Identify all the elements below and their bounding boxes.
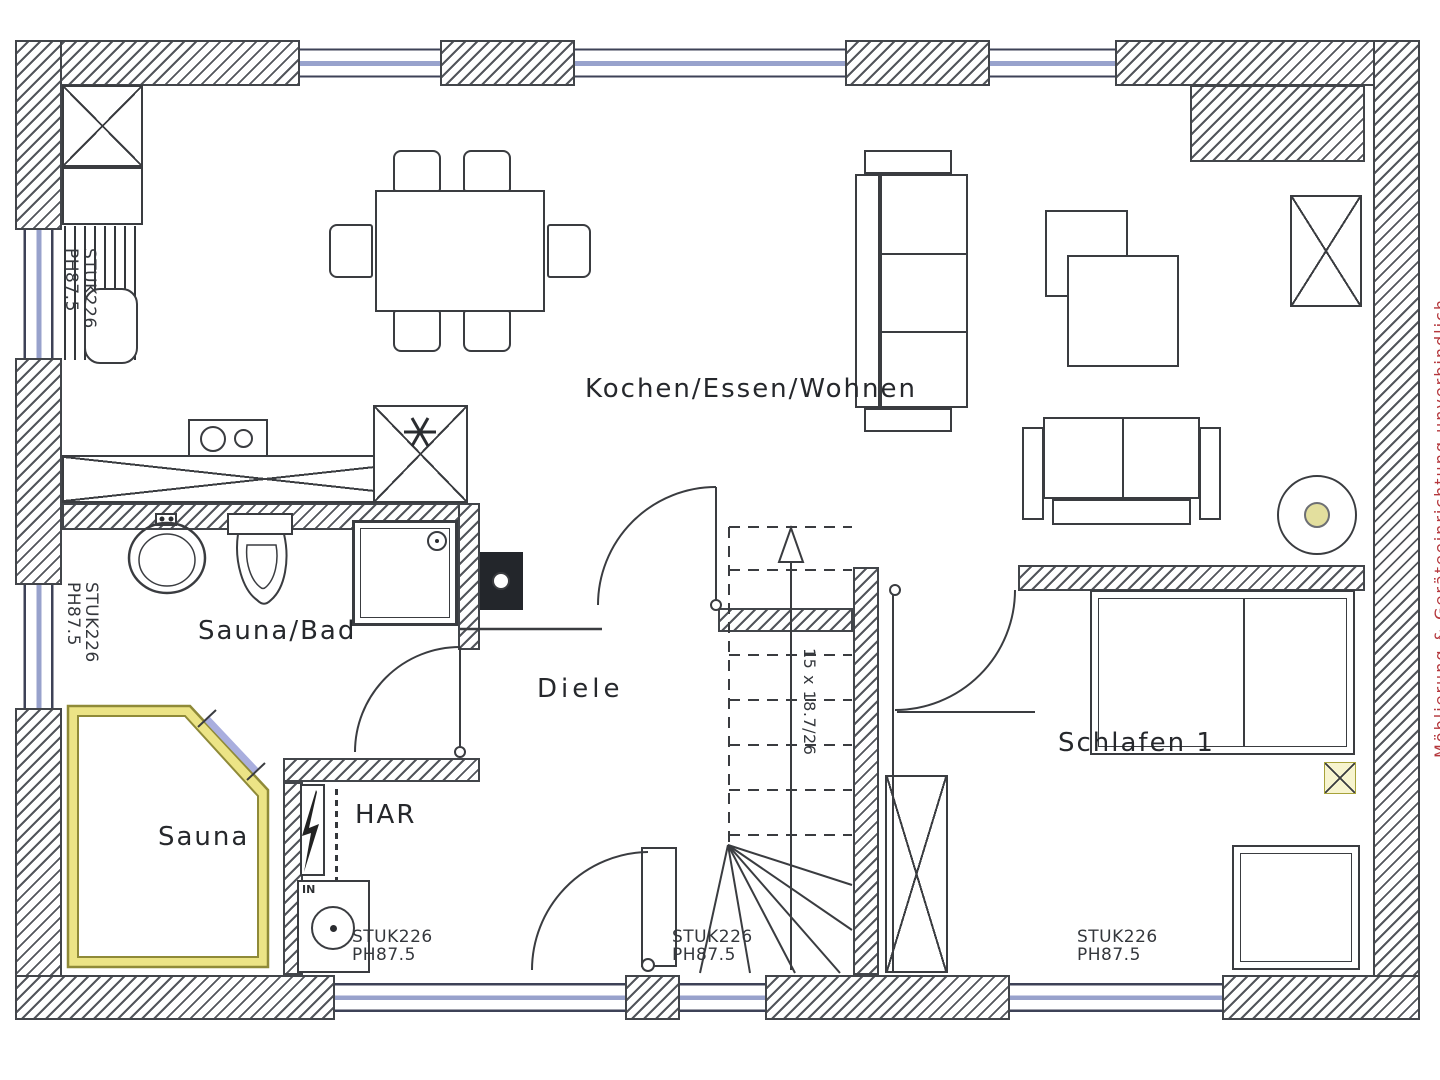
wall-bottom-2 [625,975,680,1020]
wall-top-3 [845,40,990,86]
dining-chair [547,224,591,278]
room-label-sauna: Sauna [158,822,249,852]
sink-bowl-small [234,429,253,448]
wall-left-1 [15,40,62,230]
stair-dimension-note: 15 x 18.7/26 [801,648,818,755]
sink-bowl-large [200,426,226,452]
wall-top-2 [440,40,575,86]
marker-yellow-x [1324,762,1356,794]
loveseat-seat [1043,417,1200,499]
room-label-bedroom: Schlafen 1 [1058,728,1215,758]
window-top-3 [990,40,1115,86]
wall-stair-east [853,567,879,975]
meter-dial-dot [330,925,337,932]
shower-inner [360,528,450,618]
wall-bottom-3 [765,975,1010,1020]
wardrobe-right-wall [1290,195,1362,307]
wall-right [1373,40,1420,1020]
meter-label: IN [302,883,315,896]
wall-har-north [283,758,480,782]
fridge-freezer [373,405,468,503]
loveseat-armrest [1199,427,1221,520]
electric-panel [300,784,325,876]
dining-chair [393,310,441,352]
window-bottom-3 [1010,975,1222,1020]
loveseat-front [1052,499,1191,525]
window-top-1 [300,40,440,86]
window-top-2 [575,40,845,86]
lintel-note-bottom-har: STUK226 PH87.5 [352,928,433,965]
loveseat-armrest [1022,427,1044,520]
side-note-red: Möblierung & Geräteeinrichtung unverbind… [1431,298,1440,758]
wall-bottom-1 [15,975,335,1020]
sofa-armrest [864,150,952,174]
window-left-1 [15,230,62,358]
wall-bottom-4 [1222,975,1420,1020]
plan-linework [0,0,1440,1080]
wardrobe-by-stairs [885,775,948,973]
coffee-table-2 [1067,255,1179,367]
sauna-glass-door [207,719,256,771]
lintel-note-bottom-hall: STUK226 PH87.5 [672,928,753,965]
dining-chair [329,224,373,278]
wall-left-3 [15,708,62,1020]
wall-stair-landing [718,608,853,632]
dining-chair [463,150,511,192]
window-bottom-2 [680,975,765,1020]
sofa-seat [880,174,968,408]
tall-cupboard-topleft [62,85,143,167]
bed-1-pillow-line [1243,598,1245,747]
floor-drain-mat [480,552,523,610]
bed-2-inner [1240,853,1352,962]
floor-plan: IN [0,0,1440,1080]
window-left-2 [15,585,62,708]
dining-chair [463,310,511,352]
lintel-note-left-top: STUK226 PH87.5 [61,248,98,329]
room-label-hall: Diele [537,674,623,704]
lintel-note-left-mid: STUK226 PH87.5 [63,582,100,663]
room-label-bath: Sauna/Bad [198,616,356,646]
staircase [700,527,852,973]
wall-bath-east [458,503,480,650]
sofa-back [855,174,880,408]
shelf-topleft [62,167,143,225]
kitchen-sink-unit [188,419,268,457]
window-bottom-1 [335,975,625,1020]
dining-table [375,190,545,312]
room-label-utility: HAR [355,800,416,830]
sofa-cushion-line [882,331,966,333]
sofa-cushion-line [882,253,966,255]
room-label-living: Kochen/Essen/Wohnen [585,374,917,404]
wall-left-2 [15,358,62,585]
wall-bedroom-north [1018,565,1365,591]
sofa-armrest [864,408,952,432]
bed-1-inner [1098,598,1347,747]
dining-chair [393,150,441,192]
loveseat-cushion-line [1122,419,1124,497]
lintel-note-bottom-bedroom: STUK226 PH87.5 [1077,928,1158,965]
wall-top-right-block [1190,85,1365,162]
round-table-center [1304,502,1330,528]
